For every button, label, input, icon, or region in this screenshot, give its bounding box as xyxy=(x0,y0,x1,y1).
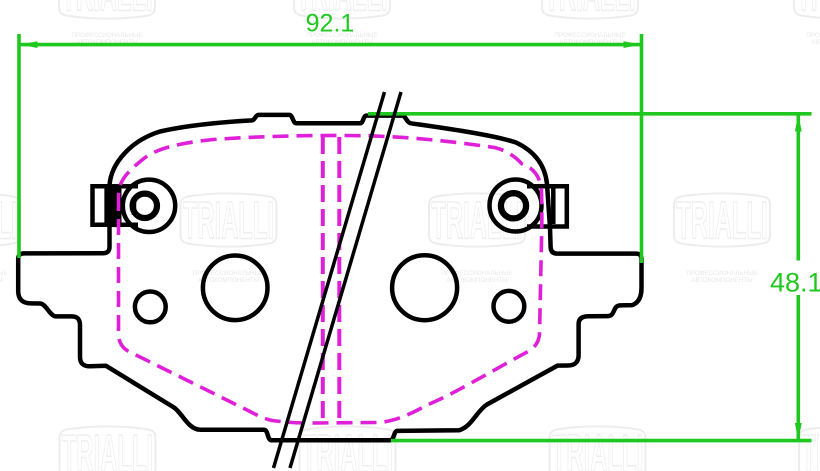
svg-text:TRIALLI: TRIALLI xyxy=(62,424,153,471)
svg-text:TRIALLI: TRIALLI xyxy=(801,424,820,471)
svg-text:АВТОКОМПОНЕНТЫ: АВТОКОМПОНЕНТЫ xyxy=(811,39,820,46)
svg-text:ПРОФЕССИОНАЛЬНЫЕ: ПРОФЕССИОНАЛЬНЫЕ xyxy=(0,270,8,277)
svg-text:TRIALLI: TRIALLI xyxy=(0,191,18,250)
svg-text:АВТОКОМПОНЕНТЫ: АВТОКОМПОНЕНТЫ xyxy=(691,277,752,284)
svg-text:АВТОКОМПОНЕНТЫ: АВТОКОМПОНЕНТЫ xyxy=(198,277,259,284)
svg-text:АВТОКОМПОНЕНТЫ: АВТОКОМПОНЕНТЫ xyxy=(0,277,3,284)
svg-text:TRIALLI: TRIALLI xyxy=(676,191,767,250)
svg-text:ПРОФЕССИОНАЛЬНЫЕ: ПРОФЕССИОНАЛЬНЫЕ xyxy=(71,32,142,39)
svg-text:48.1: 48.1 xyxy=(770,268,820,298)
svg-text:ПРОФЕССИОНАЛЬНЫЕ: ПРОФЕССИОНАЛЬНЫЕ xyxy=(806,32,820,39)
svg-text:TRIALLI: TRIALLI xyxy=(61,0,152,22)
svg-text:TRIALLI: TRIALLI xyxy=(796,0,820,22)
svg-text:TRIALLI: TRIALLI xyxy=(183,191,274,250)
svg-text:TRIALLI: TRIALLI xyxy=(544,0,635,22)
svg-text:TRIALLI: TRIALLI xyxy=(302,424,393,471)
svg-text:ПРОФЕССИОНАЛЬНЫЕ: ПРОФЕССИОНАЛЬНЫЕ xyxy=(686,270,757,277)
svg-text:ПРОФЕССИОНАЛЬНЫЕ: ПРОФЕССИОНАЛЬНЫЕ xyxy=(554,32,625,39)
svg-text:92.1: 92.1 xyxy=(306,10,355,38)
svg-text:TRIALLI: TRIALLI xyxy=(552,424,643,471)
